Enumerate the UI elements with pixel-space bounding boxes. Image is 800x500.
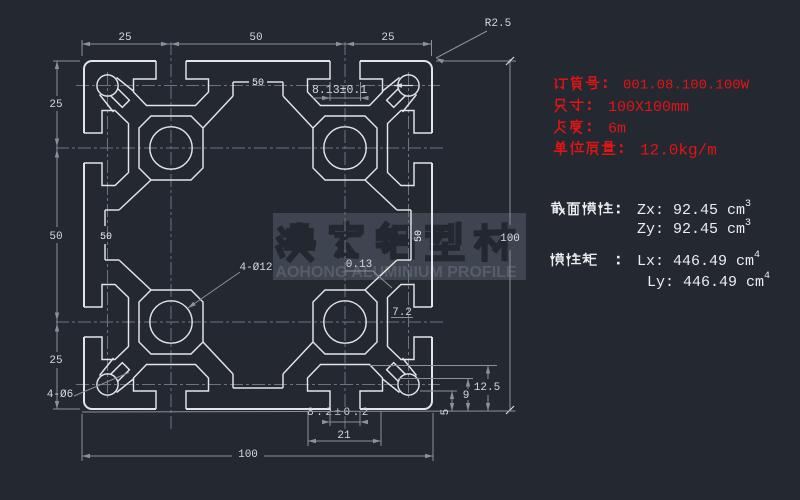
svg-text:4: 4: [754, 250, 760, 261]
svg-text:12.5: 12.5: [474, 382, 500, 394]
svg-text:50: 50: [414, 230, 425, 242]
svg-text:8.13±0.1: 8.13±0.1: [312, 84, 367, 97]
svg-text:50: 50: [252, 78, 264, 89]
svg-text:100: 100: [500, 233, 520, 245]
svg-text:3: 3: [745, 199, 751, 210]
svg-text:4-Ø6: 4-Ø6: [47, 389, 73, 401]
svg-text:R2.5: R2.5: [485, 18, 511, 30]
svg-text:9: 9: [463, 390, 470, 402]
svg-text:100X100mm: 100X100mm: [608, 99, 689, 116]
svg-text:21: 21: [337, 430, 351, 442]
svg-text:25: 25: [49, 355, 62, 367]
svg-text:Zx: 92.45 cm: Zx: 92.45 cm: [637, 202, 745, 219]
svg-text:4: 4: [764, 271, 770, 282]
svg-text:3: 3: [745, 218, 751, 229]
svg-text:25: 25: [118, 32, 131, 44]
svg-text:0.13: 0.13: [346, 259, 372, 271]
svg-text:8.2±0.2: 8.2±0.2: [307, 407, 371, 419]
svg-text:50: 50: [249, 32, 262, 44]
svg-text:25: 25: [49, 99, 62, 111]
svg-text:5: 5: [440, 409, 452, 416]
svg-text:Lx: 446.49 cm: Lx: 446.49 cm: [637, 253, 754, 270]
svg-text:AOHONG ALUMINIUM PROFILE: AOHONG ALUMINIUM PROFILE: [275, 264, 517, 281]
svg-text:Zy: 92.45 cm: Zy: 92.45 cm: [637, 221, 745, 238]
svg-text:4-Ø12: 4-Ø12: [239, 262, 272, 274]
svg-text:25: 25: [381, 32, 394, 44]
svg-text:Ly: 446.49 cm: Ly: 446.49 cm: [647, 274, 764, 291]
svg-text:50: 50: [49, 231, 62, 243]
svg-text:001.08.100.100W: 001.08.100.100W: [623, 78, 750, 94]
svg-text:12.0kg/m: 12.0kg/m: [640, 141, 717, 159]
svg-text:50: 50: [100, 232, 112, 243]
svg-text:100: 100: [238, 449, 258, 461]
svg-text:6m: 6m: [608, 120, 626, 137]
